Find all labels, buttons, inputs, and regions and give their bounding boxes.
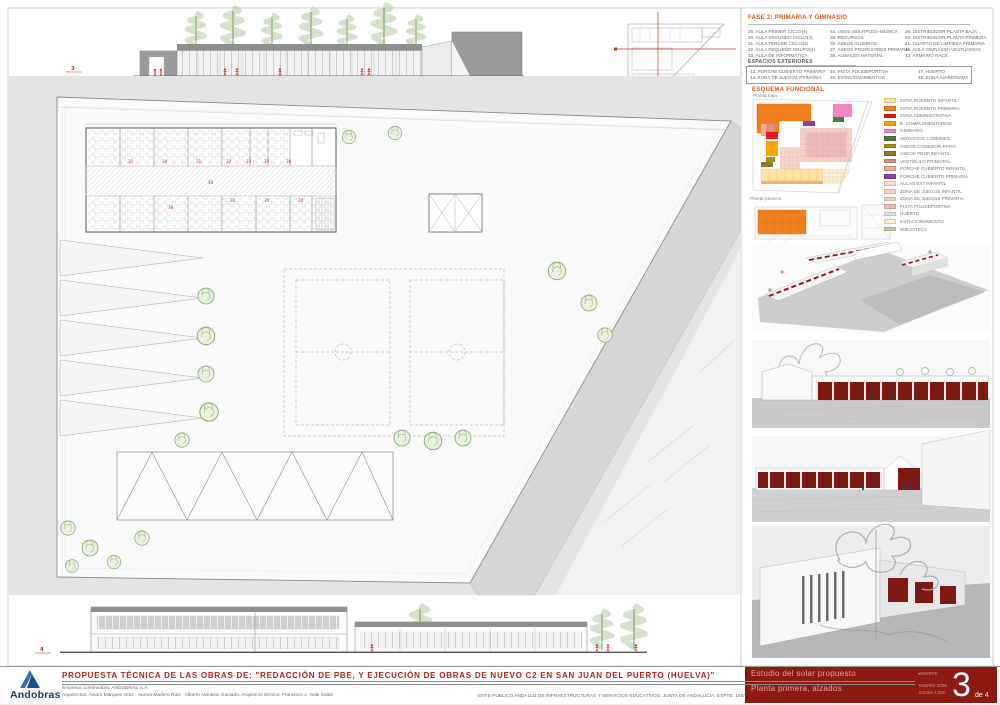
scheme-docente-infantil: [761, 169, 823, 181]
exteriores-col3: 47. HUERTO 48. ZONA AJARDINADA: [918, 69, 968, 81]
list-item: 41. CUARTO DE LIMPIEZA PRIMARIA: [905, 41, 986, 47]
svg-text:31: 31: [196, 159, 202, 164]
legend-item: PORCHE CUBIERTO PRIMARIA: [884, 172, 968, 180]
covered-porch: [117, 452, 393, 520]
legend-swatch: [884, 136, 896, 141]
andobras-logo-text: Andobras: [10, 689, 61, 701]
list-item: 42. AULA GIMNASIO+VESTUARIOS: [905, 47, 986, 53]
legend-swatch: [884, 121, 896, 126]
legend-swatch: [884, 98, 896, 103]
scheme-administrativa: [766, 132, 778, 139]
svg-text:38: 38: [168, 205, 174, 210]
sheet-info-panel: Estudio del solar propuesto Planta prime…: [745, 667, 997, 703]
legend-item: PORCHE CUBIERTO INFANTIL: [884, 165, 968, 173]
legend: ZONA DOCENTE INFANTIL ZONA DOCENTE PRIMA…: [884, 97, 968, 233]
render-closeup: [752, 524, 990, 658]
legend-item: ZONA DE JUEGOS INFANTIL: [884, 188, 968, 196]
legend-item: ZONA DOCENTE PRIMARIA: [884, 105, 968, 113]
legend-item: AULAS EXT.INFANTIL: [884, 180, 968, 188]
legend-item: ZONA DE JUEGOS PRIMARIA: [884, 195, 968, 203]
site-plan: 31 30 31 32 33 35 36 40 38 30 30 30: [9, 76, 740, 595]
section-marker-top: 3: [71, 66, 75, 72]
legend-label: E. COMPLEMENTARIOS: [900, 121, 952, 126]
legend-item: ESTACIONAMIENTO: [884, 218, 968, 226]
entity-line: ENTE PÚBLICO ANDALUZ DE INFRAESTRUCTURAS…: [478, 694, 738, 699]
legend-swatch: [884, 114, 896, 119]
esquema-planta-baja: [753, 99, 872, 193]
svg-text:40: 40: [208, 180, 214, 185]
andobras-logo-icon: [16, 670, 48, 688]
building-floor-plan: 31 30 31 32 33 35 36 40 38 30 30 30: [86, 124, 336, 232]
elevation-top: 3: [66, 4, 524, 76]
north-label: ◄NORTE: [917, 671, 938, 676]
render-street: [752, 340, 990, 428]
fase2-col3: 39. DISTRIBUIDOR PLANTA BAJA 40. DISTRIB…: [905, 29, 986, 59]
legend-item: PISTA POLIDEPORTIVA: [884, 203, 968, 211]
project-title: PROPUESTA TÉCNICA DE LAS OBRAS DE: "REDA…: [62, 671, 715, 680]
list-item: 43. ARMARIO RACK: [905, 53, 986, 59]
legend-label: ZONA DOCENTE PRIMARIA: [900, 106, 960, 111]
svg-text:36: 36: [286, 159, 292, 164]
legend-label: ZONA ADMINISTRATIVA: [900, 113, 951, 118]
legend-item: ZONA DOCENTE INFANTIL: [884, 97, 968, 105]
legend-label: BIBLIOTECA: [900, 227, 927, 232]
legend-item: GIMNASIO: [884, 127, 968, 135]
list-item: 44. ZONA DE JUEGOS PRIMARIA: [750, 75, 826, 81]
legend-swatch: [884, 159, 896, 164]
svg-text:30: 30: [298, 198, 304, 203]
list-item: 37. ASEOS PROFESORES PRIMARIA: [830, 47, 910, 53]
section-marker-bottom: 4: [40, 647, 44, 653]
svg-text:30: 30: [264, 198, 270, 203]
legend-item: HUERTO: [884, 210, 968, 218]
title-underline: [62, 681, 915, 685]
scheme-porche-infantil: [761, 124, 766, 136]
gym-plan: [429, 194, 482, 232]
list-item: 33. AULA DE INFORMÁTICA: [748, 53, 815, 59]
scheme-vestibulo: [766, 124, 775, 131]
drawing-sheet: 3: [0, 0, 1000, 705]
elevation-top-roof-band: [177, 44, 422, 51]
legend-label: ZONA DE JUEGOS INFANTIL: [900, 189, 962, 194]
legend-swatch: [884, 197, 896, 202]
scheme-gimnasio: [833, 104, 852, 117]
sheet-number: 3: [952, 668, 971, 702]
exteriores-col1: 43. PORCHE CUBIERTO PRIMARIA 44. ZONA DE…: [750, 69, 826, 81]
elevation-top-facade: [177, 51, 422, 77]
render-courtyard: [752, 430, 990, 522]
scheme-aseos-comedor: [766, 157, 775, 162]
list-item: 32. AULA PEQUEÑO GRUPO(4): [748, 47, 815, 53]
legend-label: AULAS EXT.INFANTIL: [900, 181, 946, 186]
esquema-title: ESQUEMA FUNCIONAL: [752, 87, 824, 93]
planta-baja-label: Planta baja: [753, 94, 777, 99]
planta-primera-label: Planta primera: [750, 197, 781, 202]
svg-text:32: 32: [226, 159, 232, 164]
scale-label: Escala 1:300: [919, 690, 946, 695]
scheme-porche-infantil-strip: [761, 181, 823, 184]
exteriores-col2: 45. PISTA POLIDEPORTIVA 46. ESTACIONAMIE…: [830, 69, 888, 81]
list-item: 31. AULA TERCER CICLO(4): [748, 41, 815, 47]
legend-label: SERVICIOS COMUNES: [900, 136, 950, 141]
legend-label: GIMNASIO: [900, 128, 923, 133]
svg-text:33: 33: [246, 159, 252, 164]
svg-text:35: 35: [264, 159, 270, 164]
legend-item: ZONA ADMINISTRATIVA: [884, 112, 968, 120]
legend-label: PORCHE CUBIERTO INFANTIL: [900, 166, 966, 171]
scheme-porche-primaria: [803, 121, 815, 126]
legend-item: SERVICIOS COMUNES: [884, 135, 968, 143]
legend-label: ZONA DOCENTE INFANTIL: [900, 98, 958, 103]
panel-row1: Estudio del solar propuesto: [751, 669, 856, 678]
date-label: ENERO 2009: [919, 683, 947, 688]
svg-text:30: 30: [162, 159, 168, 164]
legend-swatch: [884, 227, 896, 232]
sheet-total: de 4: [975, 692, 989, 699]
legend-swatch: [884, 106, 896, 111]
legend-label: ESTACIONAMIENTO: [900, 219, 944, 224]
fase2-col1: 29. AULA PRIMER CICLO(4) 30. AULA SEGUND…: [748, 29, 815, 59]
svg-text:30: 30: [230, 198, 236, 203]
legend-swatch: [884, 204, 896, 209]
legend-swatch: [884, 144, 896, 149]
elevation-bottom: 4: [35, 605, 647, 653]
list-item: 46. ESTACIONAMIENTOS: [830, 75, 888, 81]
render-aerial: [752, 242, 990, 333]
scheme-servicios-comunes: [833, 117, 844, 122]
legend-label: ASEOS PROF.INFANTIL: [900, 151, 951, 156]
legend-swatch: [884, 189, 896, 194]
esquema-planta-primera: [755, 205, 890, 242]
legend-swatch: [884, 166, 896, 171]
legend-swatch: [884, 181, 896, 186]
legend-label: PISTA POLIDEPORTIVA: [900, 204, 951, 209]
list-item: 48. ZONA AJARDINADA: [918, 75, 968, 81]
fase2-col2: 34. USOS MÚLTIPLES+MÚSICA 35. RECURSOS 3…: [830, 29, 910, 59]
legend-item: BIBLIOTECA: [884, 225, 968, 233]
legend-swatch: [884, 174, 896, 179]
sheet-drawing: 3: [0, 0, 1000, 705]
panel-row2: Planta primera, alzados: [751, 684, 842, 693]
legend-swatch: [884, 151, 896, 156]
fase2-underline: [748, 24, 970, 25]
legend-item: ASEOS PROF.INFANTIL: [884, 150, 968, 158]
list-item: 38. ALMACÉN MATERIAL: [830, 53, 910, 59]
scheme-aseos-prof: [761, 162, 773, 167]
scheme-complementarios: [766, 141, 778, 156]
legend-item: E. COMPLEMENTARIOS: [884, 120, 968, 128]
list-item: 40. DISTRIBUIDOR PLANTA PRIMERA: [905, 35, 986, 41]
legend-item: ASEOS COMEDOR-PATIO: [884, 142, 968, 150]
legend-label: HUERTO: [900, 211, 919, 216]
title-block: Andobras PROPUESTA TÉCNICA DE LAS OBRAS …: [0, 667, 1000, 704]
legend-label: ASEOS COMEDOR-PATIO: [900, 144, 956, 149]
legend-swatch: [884, 212, 896, 217]
legend-label: ZONA DE JUEGOS PRIMARIA: [900, 196, 964, 201]
legend-label: VESTÍBULO PRINCIPAL: [900, 159, 951, 164]
fase2-title: FASE 2: PRIMARIA Y GIMNASIO: [748, 15, 847, 21]
legend-label: PORCHE CUBIERTO PRIMARIA: [900, 174, 968, 179]
svg-text:31: 31: [128, 159, 134, 164]
legend-item: VESTÍBULO PRINCIPAL: [884, 157, 968, 165]
architects-line: Arquitectos: Álvaro Márquez Ortiz - Auro…: [62, 693, 333, 700]
legend-swatch: [884, 129, 896, 134]
legend-swatch: [884, 219, 896, 224]
list-item: 30. AULA SEGUNDO CICLO(4): [748, 35, 815, 41]
